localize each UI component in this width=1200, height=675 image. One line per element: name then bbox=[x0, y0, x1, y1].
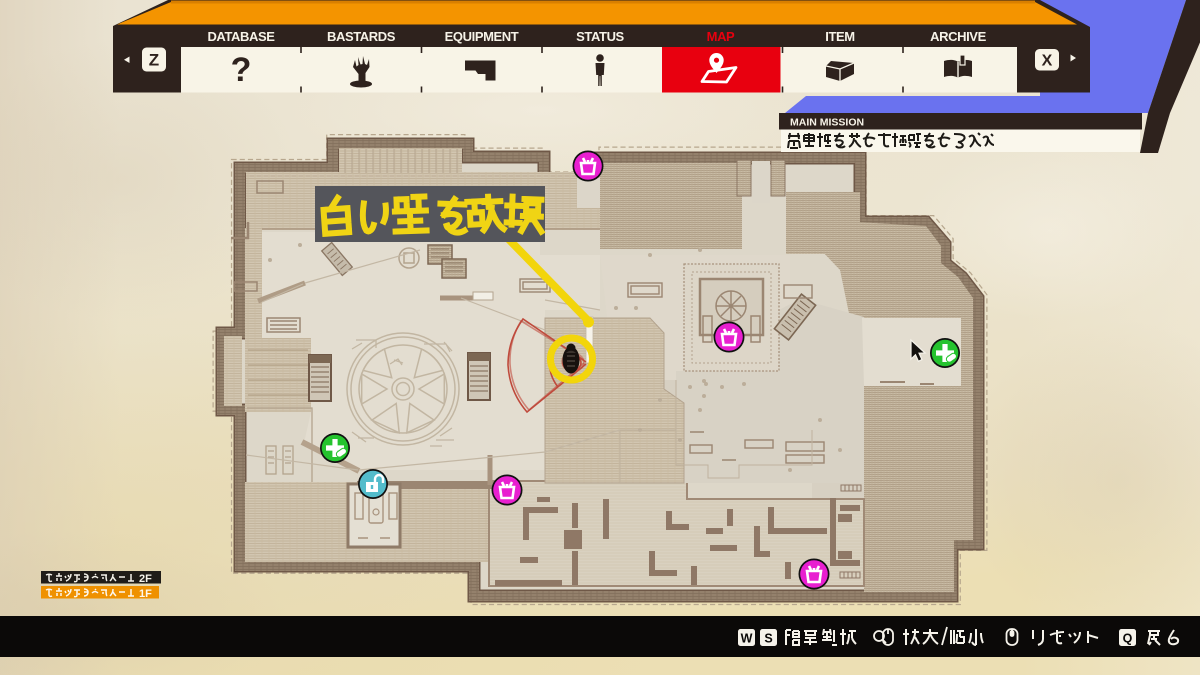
svg-text:X: X bbox=[1042, 53, 1053, 70]
svg-text:2F: 2F bbox=[139, 573, 152, 585]
svg-text:STATUS: STATUS bbox=[576, 29, 624, 44]
svg-text:Q: Q bbox=[1123, 632, 1133, 646]
svg-text:DATABASE: DATABASE bbox=[207, 29, 275, 44]
svg-text:W: W bbox=[741, 632, 753, 646]
svg-text:ITEM: ITEM bbox=[825, 29, 854, 44]
svg-text:EQUIPMENT: EQUIPMENT bbox=[445, 29, 519, 44]
svg-text:S: S bbox=[764, 632, 772, 646]
svg-text:?: ? bbox=[231, 51, 252, 89]
svg-text:MAP: MAP bbox=[707, 29, 735, 44]
svg-text:MAIN MISSION: MAIN MISSION bbox=[790, 117, 864, 129]
svg-text:BASTARDS: BASTARDS bbox=[327, 29, 396, 44]
svg-text:ARCHIVE: ARCHIVE bbox=[930, 29, 986, 44]
svg-text:Z: Z bbox=[149, 51, 159, 70]
svg-text:1F: 1F bbox=[139, 588, 152, 600]
